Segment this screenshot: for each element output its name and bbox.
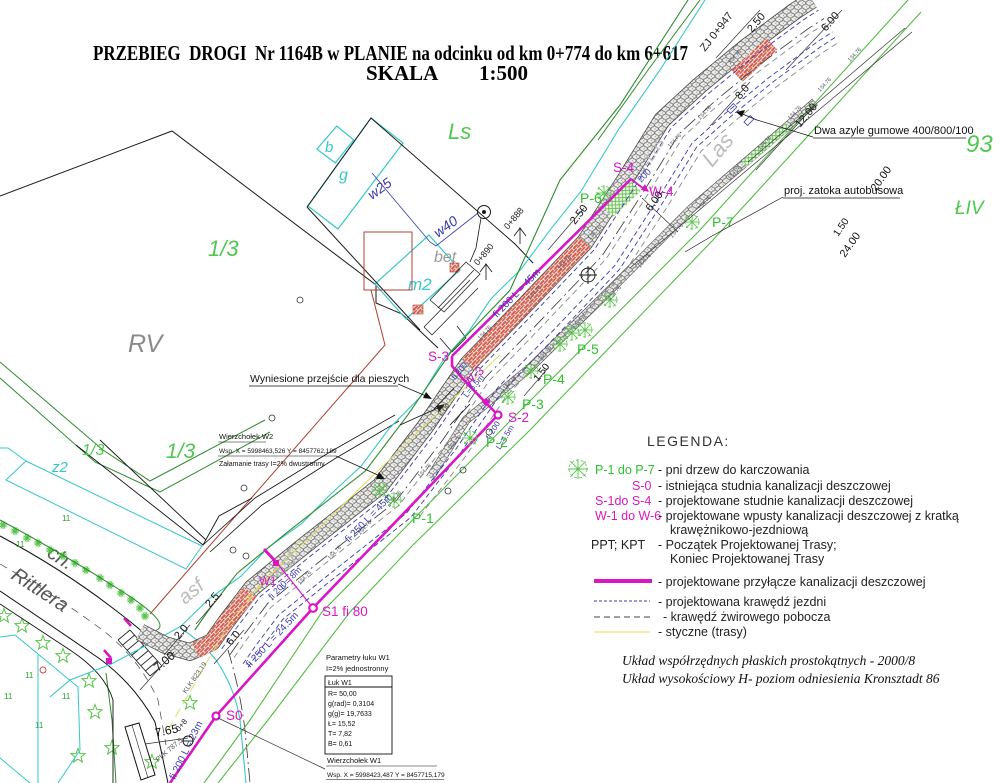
svg-text:11: 11 <box>4 692 13 701</box>
svg-text:Wsp. X = 5998423,487 Y = 84577: Wsp. X = 5998423,487 Y = 8457715,179 <box>327 772 445 779</box>
svg-text:LEGENDA:: LEGENDA: <box>647 433 730 449</box>
svg-text:1:500: 1:500 <box>479 61 528 85</box>
svg-text:Wsp. X = 5998463,526 Y = 84577: Wsp. X = 5998463,526 Y = 8457762,189 <box>219 448 337 455</box>
svg-text:z2: z2 <box>51 459 69 476</box>
svg-text:Parametry łuku W1: Parametry łuku W1 <box>326 653 390 662</box>
svg-text:11: 11 <box>62 692 71 701</box>
svg-text:P-5: P-5 <box>577 341 599 357</box>
svg-text:P-1 do P-7: P-1 do P-7 <box>595 463 655 477</box>
svg-text:11: 11 <box>16 540 25 549</box>
svg-text:11: 11 <box>62 514 71 523</box>
svg-text:1/3: 1/3 <box>208 236 239 261</box>
svg-text:Układ współrzędnych płaskich p: Układ współrzędnych płaskich prostokątny… <box>622 653 915 668</box>
svg-text:- styczne (trasy): - styczne (trasy) <box>658 625 747 639</box>
svg-text:b: b <box>325 139 333 156</box>
svg-text:Dwa azyle gumowe 400/800/100: Dwa azyle gumowe 400/800/100 <box>814 125 974 137</box>
svg-text:SKALA: SKALA <box>366 61 439 85</box>
svg-text:- Początek Projektowanej Trasy: - Początek Projektowanej Trasy; <box>658 538 837 552</box>
svg-text:S-3: S-3 <box>428 349 449 364</box>
svg-text:- istniejąca studnia kanalizac: - istniejąca studnia kanalizacji deszczo… <box>658 479 891 493</box>
svg-text:- projektowane wpusty kanaliza: - projektowane wpusty kanalizacji deszcz… <box>658 509 959 523</box>
svg-text:Wierzchołek W2: Wierzchołek W2 <box>219 432 273 441</box>
svg-text:P-1: P-1 <box>412 510 434 526</box>
svg-text:PPT; KPT: PPT; KPT <box>591 538 646 552</box>
svg-text:Załamanie trasy I=2% dwustronn: Załamanie trasy I=2% dwustronny <box>219 461 325 468</box>
svg-text:Koniec Projektowanej Trasy: Koniec Projektowanej Trasy <box>670 552 825 566</box>
svg-text:g(g)= 19,7633: g(g)= 19,7633 <box>328 711 372 718</box>
svg-text:bet: bet <box>434 249 457 266</box>
svg-text:Wierzchołek W1: Wierzchołek W1 <box>327 756 381 765</box>
svg-text:S-4: S-4 <box>613 160 635 175</box>
svg-text:- projektowane przyłącze kanal: - projektowane przyłącze kanalizacji des… <box>658 575 925 589</box>
svg-text:1/3: 1/3 <box>166 440 196 463</box>
svg-text:P-6: P-6 <box>580 190 602 206</box>
svg-text:S0: S0 <box>226 708 243 723</box>
svg-text:11: 11 <box>25 671 34 680</box>
svg-text:- projektowane studnie kanaliz: - projektowane studnie kanalizacji deszc… <box>658 494 913 508</box>
svg-text:Układ wysokościowy H- poziom o: Układ wysokościowy H- poziom odniesienia… <box>622 671 940 686</box>
svg-text:Łuk W1: Łuk W1 <box>328 680 352 687</box>
svg-text:- krawędź żwirowego pobocza: - krawędź żwirowego pobocza <box>663 610 830 624</box>
svg-text:krawężnikowo-jezdniową: krawężnikowo-jezdniową <box>670 523 808 537</box>
svg-text:ŁIV: ŁIV <box>955 198 986 219</box>
svg-text:Ls: Ls <box>448 119 471 144</box>
svg-text:g: g <box>339 167 348 184</box>
svg-text:1/3: 1/3 <box>82 442 104 459</box>
svg-text:B= 0,61: B= 0,61 <box>328 741 352 748</box>
svg-text:S-1do S-4: S-1do S-4 <box>595 494 651 508</box>
svg-text:Ł= 15,52: Ł= 15,52 <box>328 721 356 728</box>
svg-text:- pni drzew do karczowania: - pni drzew do karczowania <box>658 463 810 477</box>
svg-text:- projektowana krawędź jezdni: - projektowana krawędź jezdni <box>658 595 826 609</box>
svg-text:P-7: P-7 <box>712 214 734 230</box>
svg-text:Wyniesione przejście dla piesz: Wyniesione przejście dla pieszych <box>250 373 409 385</box>
svg-text:T= 7,82: T= 7,82 <box>328 731 352 738</box>
svg-text:P-2: P-2 <box>486 434 508 450</box>
svg-text:proj. zatoka autobusowa: proj. zatoka autobusowa <box>784 185 904 197</box>
svg-text:S-0: S-0 <box>632 479 652 493</box>
svg-text:P-3: P-3 <box>522 396 544 412</box>
svg-text:R= 50,00: R= 50,00 <box>328 691 357 698</box>
svg-text:S1 fi 80: S1 fi 80 <box>322 604 368 619</box>
svg-text:g(rad)= 0,3104: g(rad)= 0,3104 <box>328 701 374 708</box>
svg-text:I=2% jednostronny: I=2% jednostronny <box>326 664 389 673</box>
svg-text:11: 11 <box>35 721 44 730</box>
svg-text:W-1 do W-6: W-1 do W-6 <box>595 509 661 523</box>
svg-text:S-2: S-2 <box>508 410 529 425</box>
svg-text:RV: RV <box>128 330 165 358</box>
